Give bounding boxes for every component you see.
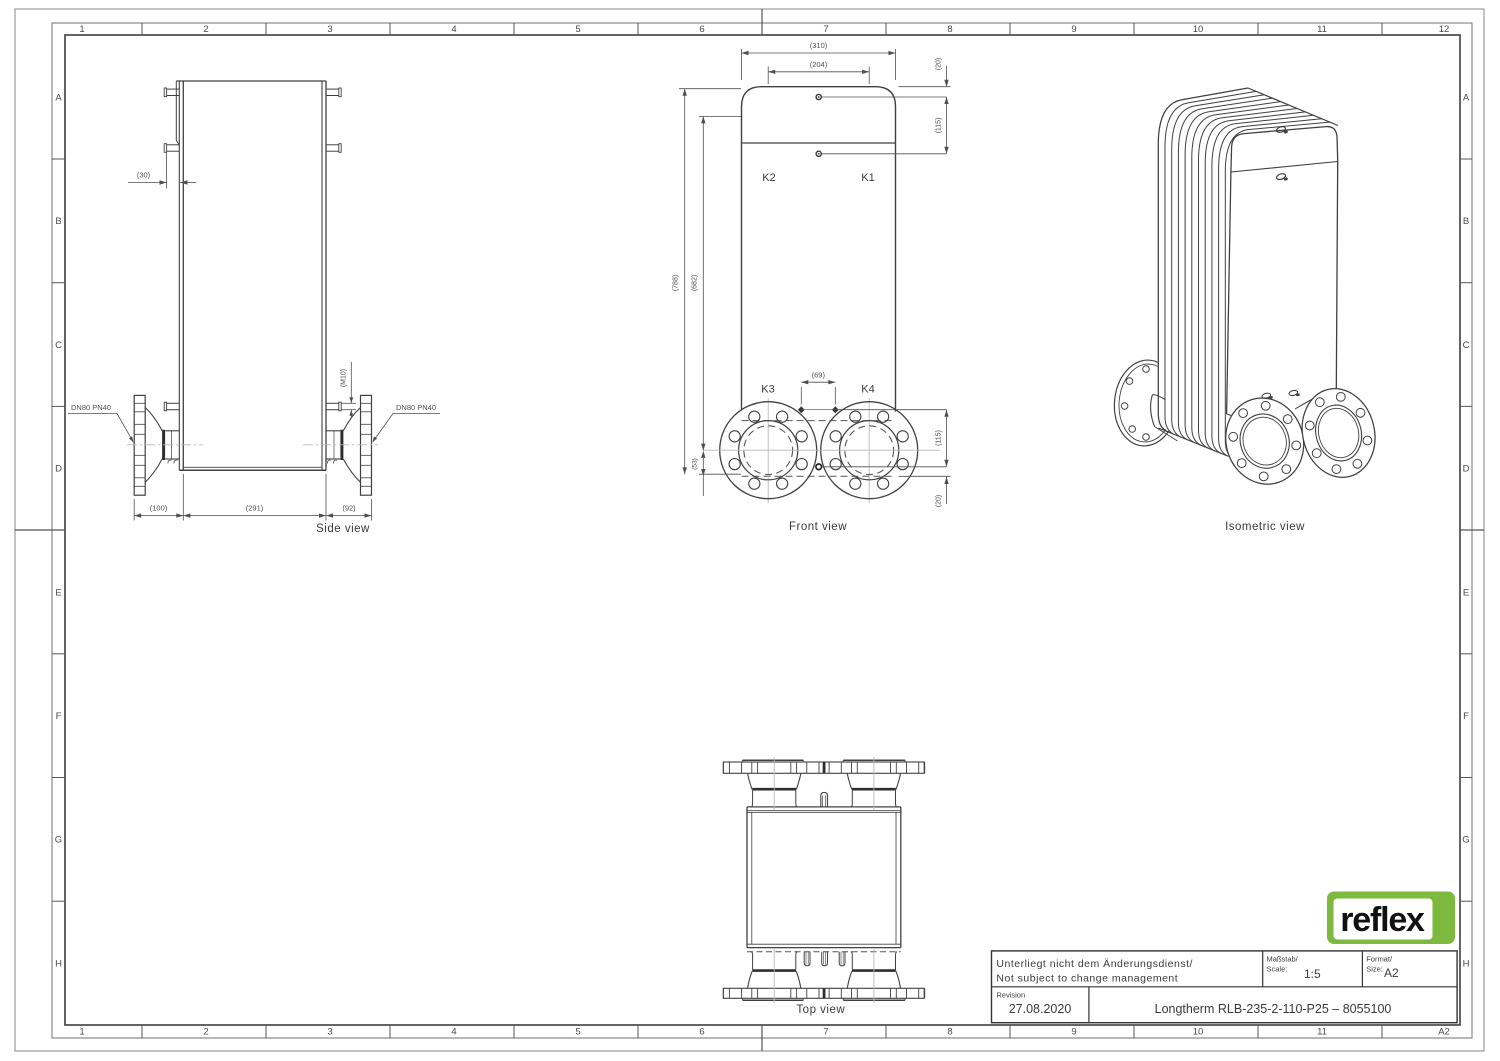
svg-text:5: 5 bbox=[575, 1027, 580, 1038]
svg-text:E: E bbox=[1463, 587, 1469, 598]
svg-text:1:5: 1:5 bbox=[1304, 967, 1321, 981]
svg-text:7: 7 bbox=[823, 24, 828, 35]
svg-text:(92): (92) bbox=[342, 504, 356, 513]
svg-text:K2: K2 bbox=[762, 172, 775, 184]
svg-text:(69): (69) bbox=[812, 371, 826, 380]
svg-text:9: 9 bbox=[1071, 24, 1076, 35]
svg-text:10: 10 bbox=[1193, 24, 1204, 35]
svg-text:Maßstab/: Maßstab/ bbox=[1267, 955, 1299, 964]
svg-text:Top view: Top view bbox=[796, 1004, 845, 1016]
svg-text:Isometric view: Isometric view bbox=[1225, 521, 1305, 533]
svg-text:(788): (788) bbox=[673, 275, 680, 291]
svg-text:3: 3 bbox=[327, 1027, 332, 1038]
svg-text:6: 6 bbox=[699, 24, 704, 35]
svg-text:1: 1 bbox=[79, 24, 84, 35]
svg-text:(100): (100) bbox=[150, 504, 168, 513]
svg-text:6: 6 bbox=[699, 1027, 704, 1038]
svg-text:(30): (30) bbox=[137, 171, 151, 180]
svg-text:Revision: Revision bbox=[996, 991, 1025, 1000]
svg-text:E: E bbox=[55, 587, 61, 598]
svg-text:H: H bbox=[1463, 958, 1470, 969]
svg-text:A2: A2 bbox=[1438, 1027, 1450, 1038]
svg-text:F: F bbox=[56, 711, 62, 722]
svg-text:Not subject to change manageme: Not subject to change management bbox=[996, 973, 1178, 985]
svg-text:5: 5 bbox=[575, 24, 580, 35]
svg-text:11: 11 bbox=[1317, 24, 1327, 35]
svg-text:G: G bbox=[1462, 835, 1469, 846]
svg-text:7: 7 bbox=[823, 1027, 828, 1038]
svg-text:Scale:: Scale: bbox=[1267, 965, 1288, 974]
svg-text:Front view: Front view bbox=[789, 521, 847, 533]
svg-text:(310): (310) bbox=[810, 41, 828, 50]
svg-text:(20): (20) bbox=[936, 58, 943, 70]
svg-text:8: 8 bbox=[947, 24, 952, 35]
svg-text:(M10): (M10) bbox=[340, 369, 347, 387]
svg-text:reflex: reflex bbox=[1340, 901, 1425, 939]
svg-text:27.08.2020: 27.08.2020 bbox=[1009, 1002, 1072, 1016]
svg-text:(204): (204) bbox=[810, 60, 828, 69]
svg-text:A: A bbox=[55, 93, 62, 104]
svg-text:D: D bbox=[1463, 464, 1470, 475]
svg-text:10: 10 bbox=[1193, 1027, 1204, 1038]
svg-text:DN80 PN40: DN80 PN40 bbox=[71, 403, 111, 412]
svg-text:(20): (20) bbox=[936, 495, 943, 507]
svg-text:8: 8 bbox=[947, 1027, 952, 1038]
svg-text:G: G bbox=[55, 835, 62, 846]
svg-text:B: B bbox=[1463, 216, 1469, 227]
svg-text:A: A bbox=[1463, 93, 1470, 104]
svg-text:3: 3 bbox=[327, 24, 332, 35]
svg-text:4: 4 bbox=[451, 1027, 456, 1038]
svg-text:(53): (53) bbox=[692, 458, 699, 470]
svg-text:Side view: Side view bbox=[316, 523, 370, 535]
svg-text:A2: A2 bbox=[1384, 966, 1399, 980]
svg-text:2: 2 bbox=[203, 24, 208, 35]
svg-text:K3: K3 bbox=[761, 384, 774, 396]
svg-text:K1: K1 bbox=[861, 172, 874, 184]
svg-text:1: 1 bbox=[79, 1027, 84, 1038]
svg-text:D: D bbox=[55, 464, 62, 475]
svg-text:(115): (115) bbox=[936, 118, 943, 134]
svg-text:9: 9 bbox=[1071, 1027, 1076, 1038]
svg-text:C: C bbox=[55, 340, 62, 351]
svg-text:DN80 PN40: DN80 PN40 bbox=[396, 403, 436, 412]
svg-text:Format/: Format/ bbox=[1366, 955, 1393, 964]
svg-text:Size:: Size: bbox=[1366, 965, 1383, 974]
svg-text:K4: K4 bbox=[861, 384, 874, 396]
svg-text:2: 2 bbox=[203, 1027, 208, 1038]
svg-text:4: 4 bbox=[451, 24, 456, 35]
svg-text:12: 12 bbox=[1439, 24, 1450, 35]
svg-text:(682): (682) bbox=[692, 275, 699, 291]
svg-text:11: 11 bbox=[1317, 1027, 1327, 1038]
svg-text:C: C bbox=[1463, 340, 1470, 351]
svg-text:H: H bbox=[55, 958, 62, 969]
svg-text:(291): (291) bbox=[246, 504, 264, 513]
svg-text:(115): (115) bbox=[936, 430, 943, 446]
svg-text:Longtherm RLB-235-2-110-P25: Longtherm RLB-235-2-110-P25 – 8055100 bbox=[1155, 1002, 1392, 1016]
svg-text:F: F bbox=[1463, 711, 1469, 722]
svg-text:Unterliegt nicht dem Änderungs: Unterliegt nicht dem Änderungsdienst/ bbox=[996, 958, 1193, 970]
svg-text:B: B bbox=[55, 216, 61, 227]
